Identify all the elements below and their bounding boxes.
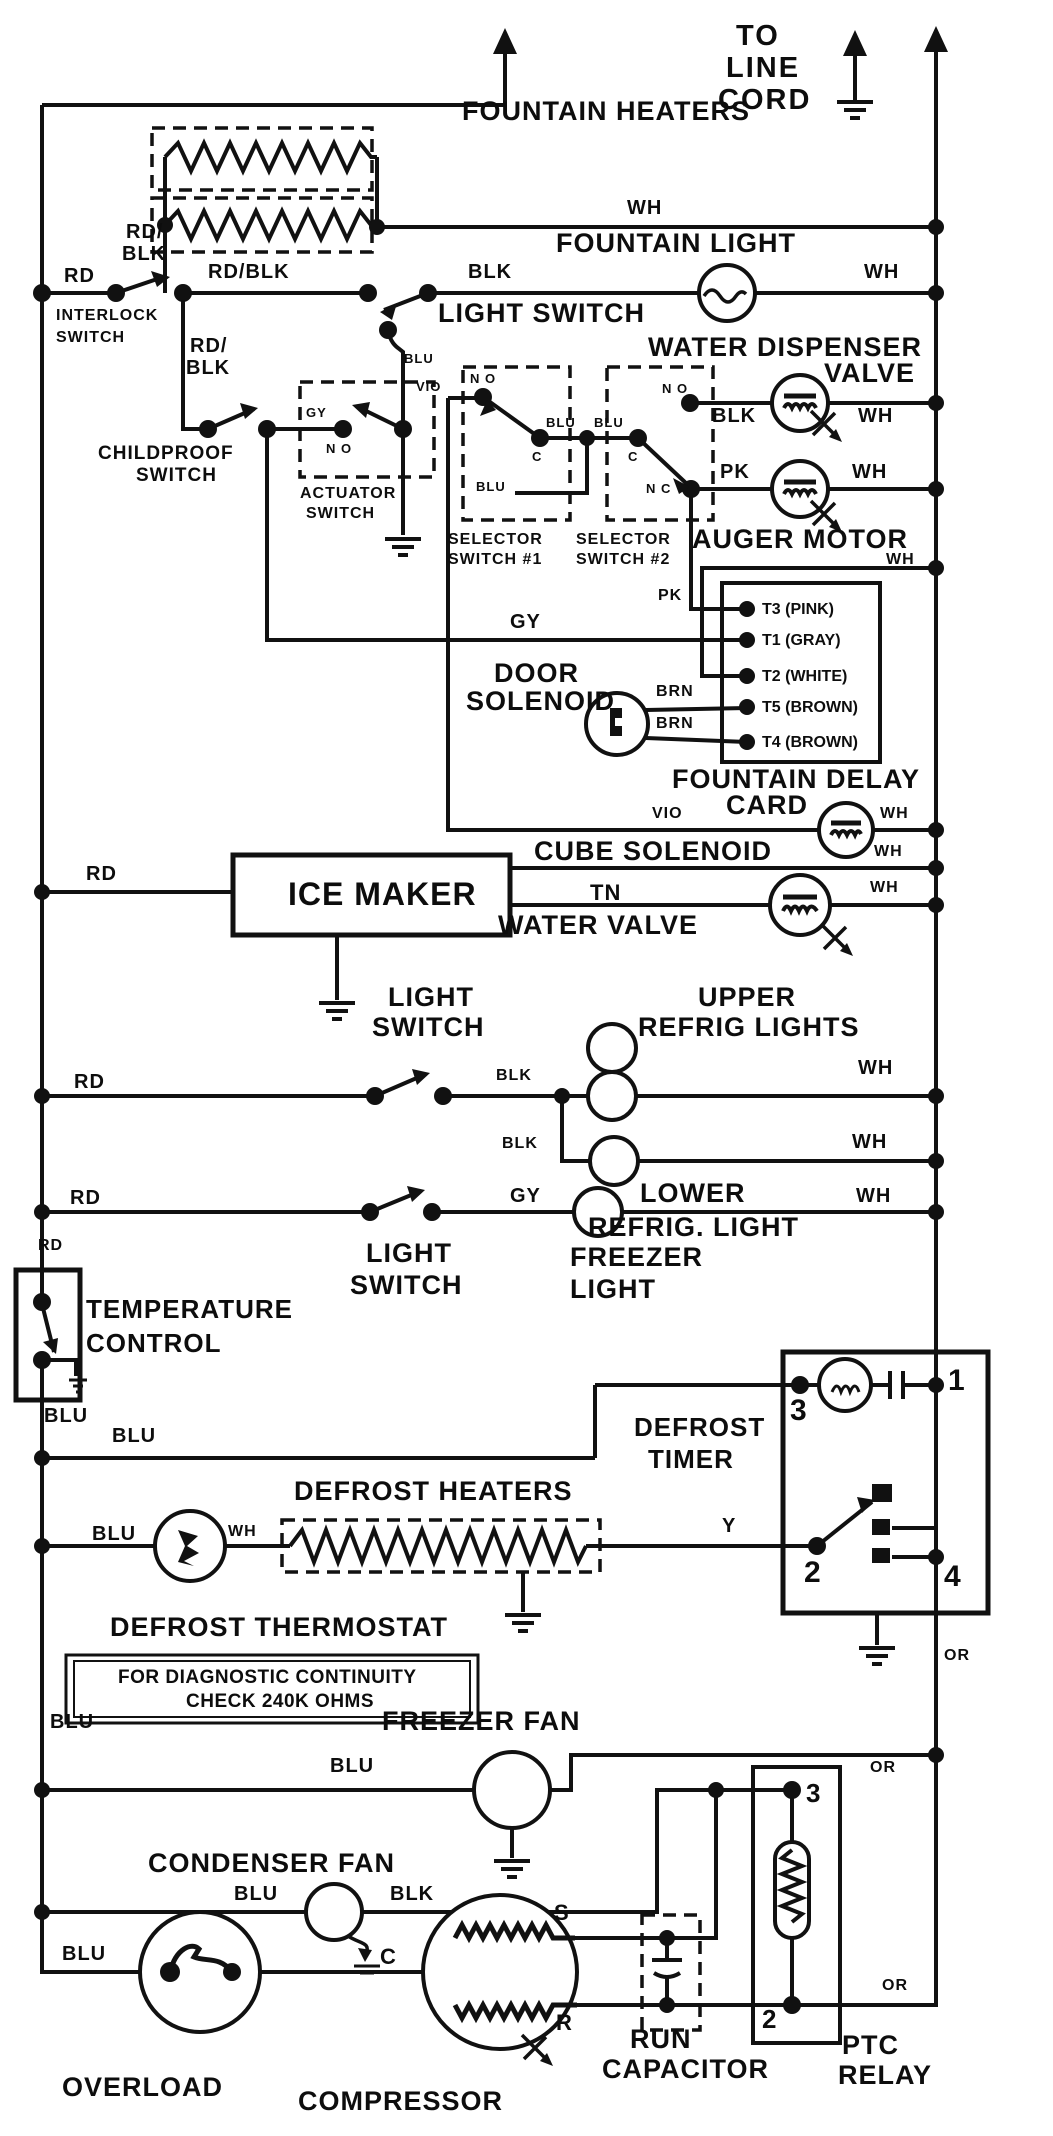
rd-label-4: RD <box>70 1188 101 1208</box>
ground-arrow <box>843 30 867 56</box>
ptc-terminal-2: 2 <box>762 2006 777 2032</box>
wh-label-7: WH <box>874 844 903 860</box>
wh-label-9: WH <box>858 1058 893 1078</box>
fountain-light-label: FOUNTAIN LIGHT <box>556 230 796 257</box>
selector2-label-2: SWITCH #2 <box>576 552 670 568</box>
auger-motor-label: AUGER MOTOR <box>692 526 908 553</box>
defrost-thermostat-circle <box>155 1511 225 1581</box>
temp-control-label-2: CONTROL <box>86 1330 222 1356</box>
sel1-blade <box>483 397 540 438</box>
selector2-box <box>607 367 713 520</box>
to-label: TO <box>736 22 780 51</box>
water-valve-label: WATER VALVE <box>498 912 698 939</box>
interlock-label-2: SWITCH <box>56 330 125 346</box>
condenser-fan-motor <box>306 1884 362 1940</box>
timer-terminal-2: 2 <box>804 1558 822 1588</box>
rd-label-5: RD <box>38 1238 63 1254</box>
door-label-1: DOOR <box>494 660 579 687</box>
door-label-2: SOLENOID <box>466 688 615 715</box>
wh-label-6: WH <box>880 806 909 822</box>
blu-small-2: BLU <box>546 416 576 429</box>
ptc-resistor-zigzag <box>782 1850 802 1922</box>
or-label-2: OR <box>870 1760 896 1776</box>
fountain-heaters-label: FOUNTAIN HEATERS <box>462 98 750 125</box>
gy-small-actuator: GY <box>306 406 327 419</box>
refrig-lightswitch-label-2: SWITCH <box>372 1014 484 1041</box>
refrig-light-label: REFRIG. LIGHT <box>588 1214 799 1241</box>
condenser-fan-label: CONDENSER FAN <box>148 1850 395 1877</box>
right-bus-arrow <box>924 26 948 52</box>
compressor-c-label: C <box>380 1946 397 1968</box>
ptc-relay-label-2: RELAY <box>838 2062 932 2089</box>
rdblk-stack1a: RD/ <box>126 222 163 242</box>
blu-small-4: BLU <box>476 480 506 493</box>
rdblk-stack2a: RD/ <box>190 336 227 356</box>
wh-label-12: WH <box>228 1524 257 1540</box>
lower-label: LOWER <box>640 1180 746 1207</box>
upper-label: UPPER <box>698 984 796 1011</box>
terminal-t1: T1 (GRAY) <box>762 633 841 649</box>
gy-label-2: GY <box>510 612 541 632</box>
wh-label-1: WH <box>627 198 662 218</box>
delay-card-label-1: FOUNTAIN DELAY <box>672 766 920 793</box>
blu-label-9: BLU <box>330 1756 374 1776</box>
freezer-fan-label: FREEZER FAN <box>382 1708 581 1735</box>
ptc-relay-label-1: PTC <box>842 2032 899 2059</box>
vio-label-2: VIO <box>652 806 683 822</box>
selector1-label-1: SELECTOR <box>448 532 543 548</box>
freezer-light-label-1: FREEZER <box>570 1244 703 1271</box>
runcap-symbol <box>652 1938 682 2005</box>
pk-label-1: PK <box>720 462 750 482</box>
selector2-label-1: SELECTOR <box>576 532 671 548</box>
diagnostic-note-2: CHECK 240K OHMS <box>186 1692 374 1711</box>
timer-contacts <box>872 1484 892 1563</box>
rdblk-stack2b: BLK <box>186 358 230 378</box>
wh-label-5: WH <box>886 552 915 568</box>
no-label-actuator: N O <box>326 442 352 455</box>
compressor-s-label: S <box>554 1902 570 1924</box>
freezer-lightswitch-label-2: SWITCH <box>350 1272 462 1299</box>
line-cord-ground <box>837 102 873 118</box>
run-capacitor-label-1: RUN <box>630 2026 692 2053</box>
rdblk-label: RD/BLK <box>208 262 290 282</box>
wh-label-11: WH <box>856 1186 891 1206</box>
childproof-label-1: CHILDPROOF <box>98 444 234 463</box>
actuator-label-1: ACTUATOR <box>300 486 396 502</box>
defrost-heaters-label: DEFROST HEATERS <box>294 1478 573 1505</box>
compressor-label: COMPRESSOR <box>298 2088 503 2115</box>
pk-label-2: PK <box>658 588 682 604</box>
timer-terminal-3: 3 <box>790 1396 808 1426</box>
wh-label-2: WH <box>864 262 899 282</box>
ptc-terminal-3: 3 <box>806 1780 821 1806</box>
blk-label-5: BLK <box>390 1884 434 1904</box>
sel2-blade <box>638 438 688 485</box>
vio-label-1: VIO <box>416 380 441 393</box>
blu-label-6: BLU <box>112 1426 156 1446</box>
run-capacitor-label-2: CAPACITOR <box>602 2056 769 2083</box>
actuator-ground <box>385 539 421 555</box>
refrig-lights-label: REFRIG LIGHTS <box>638 1014 860 1041</box>
blk-label-3: BLK <box>496 1068 532 1084</box>
line-label: LINE <box>726 54 800 83</box>
freezer-lightswitch-label-1: LIGHT <box>366 1240 452 1267</box>
freezer-fan-motor <box>474 1752 550 1828</box>
wh-label-3: WH <box>858 406 893 426</box>
watervalve-x <box>822 925 853 956</box>
heater2-element <box>165 211 377 239</box>
interlock-label-1: INTERLOCK <box>56 308 158 324</box>
line-cord-arrow <box>493 28 517 54</box>
rd-label-3: RD <box>74 1072 105 1092</box>
timer-terminal-1: 1 <box>948 1366 966 1396</box>
blk-label-2: BLK <box>712 406 756 426</box>
actuator-label-2: SWITCH <box>306 506 375 522</box>
blu-small-3: BLU <box>594 416 624 429</box>
timer-terminal-4: 4 <box>944 1562 962 1592</box>
icemaker-ground <box>319 1003 355 1019</box>
cube-solenoid-label: CUBE SOLENOID <box>534 838 772 865</box>
selector1-label-2: SWITCH #1 <box>448 552 542 568</box>
brn-label-2: BRN <box>656 716 694 732</box>
dispenser-valve-coil <box>772 375 828 431</box>
top-line <box>42 50 505 105</box>
sel-line <box>515 438 638 493</box>
freezer-fan-ground <box>494 1861 530 1877</box>
tn-label: TN <box>590 882 621 904</box>
or-label-1: OR <box>944 1648 970 1664</box>
no-label-sel2: N O <box>662 382 688 395</box>
lower-refrig-lamp <box>590 1137 638 1185</box>
upper-refrig-lamp1 <box>588 1024 636 1072</box>
light-switch-label-1: LIGHT SWITCH <box>438 300 645 327</box>
defrost-element <box>290 1530 586 1562</box>
freezer-light-label-2: LIGHT <box>570 1276 656 1303</box>
timer-ground <box>859 1648 895 1664</box>
defrost-ground <box>505 1615 541 1631</box>
delay-card-label-2: CARD <box>726 792 808 819</box>
overload-label: OVERLOAD <box>62 2074 223 2101</box>
blu-label-7: BLU <box>92 1524 136 1544</box>
terminal-t4: T4 (BROWN) <box>762 735 858 751</box>
terminal-t5: T5 (BROWN) <box>762 700 858 716</box>
c-label-2: C <box>628 450 638 463</box>
rdblk-stack1b: BLK <box>122 244 166 264</box>
childproof-label-2: SWITCH <box>136 466 217 485</box>
valve-label: VALVE <box>824 360 915 387</box>
cube-solenoid-coil <box>819 803 873 857</box>
wh-label-10: WH <box>852 1132 887 1152</box>
blk-label-1: BLK <box>468 262 512 282</box>
water-dispenser-label: WATER DISPENSER <box>648 334 922 361</box>
temp-control-label-1: TEMPERATURE <box>86 1296 293 1322</box>
or-label-3: OR <box>882 1978 908 1994</box>
blu-label-8: BLU <box>50 1712 94 1732</box>
upper-refrig-lamp2 <box>588 1072 636 1120</box>
blu-label-11: BLU <box>62 1944 106 1964</box>
defrost-timer-label-2: TIMER <box>648 1446 734 1472</box>
c-label-1: C <box>532 450 542 463</box>
defrost-thermostat-label: DEFROST THERMOSTAT <box>110 1614 448 1641</box>
brn-label-1: BRN <box>656 684 694 700</box>
terminal-t2: T2 (WHITE) <box>762 669 847 685</box>
rd-label-2: RD <box>86 864 117 884</box>
condenser-ground-mark <box>348 1936 380 1973</box>
overload-circle <box>140 1912 260 2032</box>
y-label: Y <box>722 1516 736 1536</box>
defrost-timer-label-1: DEFROST <box>634 1414 765 1440</box>
diagnostic-note-1: FOR DIAGNOSTIC CONTINUITY <box>118 1668 417 1687</box>
blu-label-5: BLU <box>44 1406 88 1426</box>
gy-label-3: GY <box>510 1186 541 1206</box>
heater1-element <box>165 143 377 171</box>
wiring-diagram: TO LINE CORD FOUNTAIN HEATERS WH FOUNTAI… <box>0 0 1053 2136</box>
nc-label: N C <box>646 482 671 495</box>
ice-maker-label: ICE MAKER <box>288 878 477 910</box>
compressor-r-label: R <box>556 2012 573 2034</box>
blu-small-1: BLU <box>404 352 434 365</box>
terminal-t3: T3 (PINK) <box>762 602 834 618</box>
blu-label-10: BLU <box>234 1884 278 1904</box>
no-label-sel1: N O <box>470 372 496 385</box>
rd-label-1: RD <box>64 266 95 286</box>
wh-label-8: WH <box>870 880 899 896</box>
refrig-lightswitch-label-1: LIGHT <box>388 984 474 1011</box>
left-bus <box>42 105 140 1972</box>
wh-label-4: WH <box>852 462 887 482</box>
blk-label-4: BLK <box>502 1136 538 1152</box>
timer-cap <box>871 1371 936 1399</box>
